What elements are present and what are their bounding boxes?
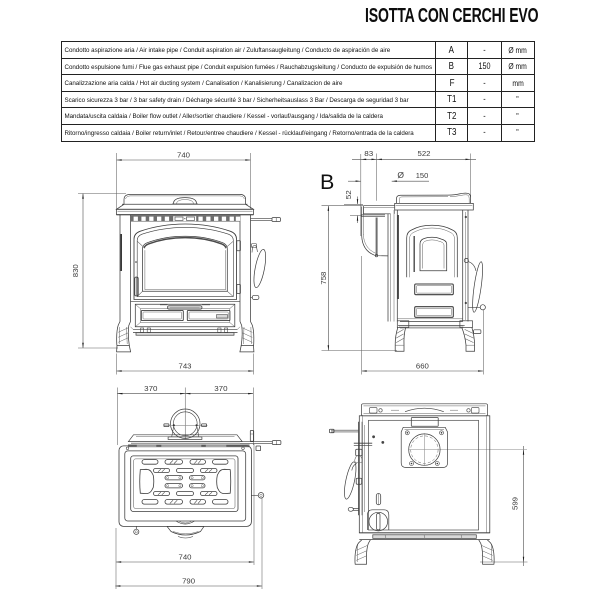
svg-text:599: 599 xyxy=(511,497,520,510)
svg-text:B: B xyxy=(320,170,334,194)
svg-text:83: 83 xyxy=(364,149,373,158)
svg-text:370: 370 xyxy=(144,384,157,393)
svg-text:743: 743 xyxy=(179,361,192,370)
svg-text:522: 522 xyxy=(418,149,431,158)
svg-text:740: 740 xyxy=(177,150,190,159)
svg-text:150: 150 xyxy=(416,171,429,180)
svg-text:758: 758 xyxy=(319,272,328,285)
svg-text:790: 790 xyxy=(182,576,195,585)
svg-text:Ø: Ø xyxy=(397,170,404,180)
svg-text:660: 660 xyxy=(416,361,429,370)
svg-text:370: 370 xyxy=(214,384,227,393)
svg-text:830: 830 xyxy=(71,264,80,277)
svg-text:740: 740 xyxy=(179,552,192,561)
svg-text:52: 52 xyxy=(344,190,353,199)
